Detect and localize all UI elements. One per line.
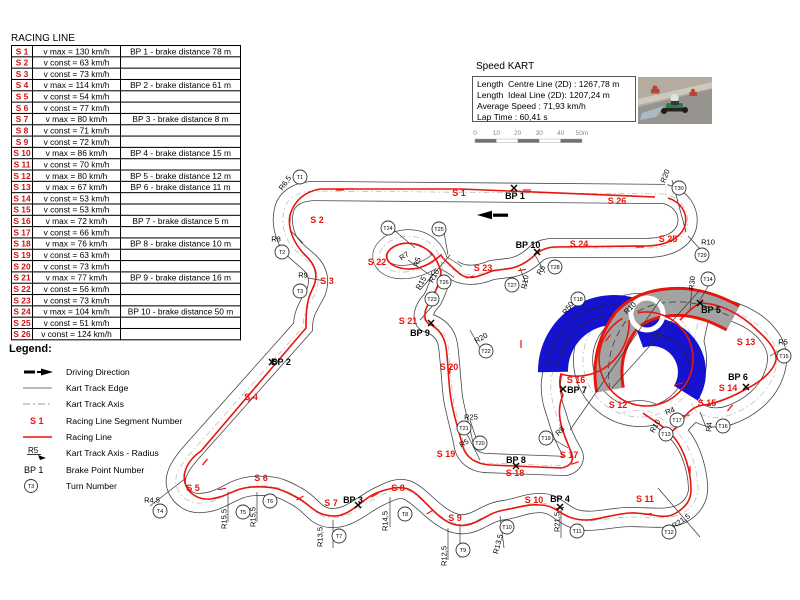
svg-text:10: 10 bbox=[493, 130, 501, 137]
svg-text:20: 20 bbox=[514, 130, 522, 137]
svg-text:S 25: S 25 bbox=[659, 234, 678, 244]
svg-text:T4: T4 bbox=[157, 509, 163, 515]
svg-text:T18: T18 bbox=[573, 297, 582, 303]
svg-text:S 23: S 23 bbox=[474, 263, 493, 273]
svg-text:BP 5: BP 5 bbox=[701, 305, 721, 315]
svg-text:T11: T11 bbox=[572, 529, 581, 535]
svg-text:T19: T19 bbox=[541, 436, 550, 442]
svg-text:BP 3: BP 3 bbox=[343, 495, 363, 505]
svg-text:T3: T3 bbox=[28, 484, 34, 490]
svg-text:Kart Track Edge: Kart Track Edge bbox=[66, 383, 128, 393]
svg-text:S 16: S 16 bbox=[567, 375, 586, 385]
svg-text:T20: T20 bbox=[475, 441, 484, 447]
svg-text:T17: T17 bbox=[672, 418, 681, 424]
svg-text:S 4: S 4 bbox=[244, 392, 258, 402]
svg-text:Turn Number: Turn Number bbox=[66, 481, 117, 491]
svg-text:BP 6: BP 6 bbox=[728, 372, 748, 382]
svg-text:R30: R30 bbox=[687, 276, 697, 290]
svg-text:S 11: S 11 bbox=[636, 494, 654, 504]
svg-text:S 1: S 1 bbox=[452, 188, 466, 198]
svg-text:R8: R8 bbox=[271, 235, 281, 244]
svg-text:T25: T25 bbox=[434, 227, 443, 233]
svg-text:T28: T28 bbox=[550, 265, 559, 271]
svg-text:BP 4: BP 4 bbox=[550, 494, 570, 504]
svg-text:BP 10: BP 10 bbox=[516, 240, 541, 250]
svg-text:Kart Track Axis: Kart Track Axis bbox=[66, 399, 125, 409]
svg-text:T2: T2 bbox=[279, 250, 285, 256]
svg-text:T27: T27 bbox=[507, 283, 516, 289]
svg-text:T10: T10 bbox=[502, 525, 511, 531]
svg-text:T13: T13 bbox=[661, 432, 670, 438]
svg-text:R4: R4 bbox=[704, 422, 714, 432]
svg-text:T21: T21 bbox=[459, 426, 468, 432]
svg-text:T1: T1 bbox=[297, 175, 303, 181]
svg-text:S 22: S 22 bbox=[368, 257, 387, 267]
svg-text:S 1: S 1 bbox=[30, 416, 44, 426]
svg-text:T22: T22 bbox=[481, 349, 490, 355]
svg-text:T8: T8 bbox=[402, 512, 408, 518]
svg-text:R10: R10 bbox=[701, 238, 715, 247]
svg-text:T5: T5 bbox=[240, 510, 246, 516]
svg-text:BP 8: BP 8 bbox=[506, 455, 526, 465]
svg-text:T6: T6 bbox=[267, 499, 273, 505]
svg-text:R5: R5 bbox=[28, 446, 39, 455]
svg-text:Driving Direction: Driving Direction bbox=[66, 367, 130, 377]
svg-text:Brake Point Number: Brake Point Number bbox=[66, 465, 144, 475]
svg-text:S 12: S 12 bbox=[609, 400, 628, 410]
svg-text:R13,5: R13,5 bbox=[316, 527, 325, 547]
svg-text:S 20: S 20 bbox=[440, 362, 459, 372]
svg-text:S 21: S 21 bbox=[399, 316, 418, 326]
svg-text:R9: R9 bbox=[298, 271, 308, 280]
svg-text:T30: T30 bbox=[674, 186, 683, 192]
svg-text:T24: T24 bbox=[383, 226, 392, 232]
svg-text:BP 1: BP 1 bbox=[505, 191, 525, 201]
svg-text:S 14: S 14 bbox=[719, 383, 738, 393]
svg-text:50m: 50m bbox=[576, 130, 589, 137]
svg-text:S 8: S 8 bbox=[391, 483, 405, 493]
svg-text:BP 1: BP 1 bbox=[24, 465, 43, 475]
svg-text:40: 40 bbox=[557, 130, 565, 137]
svg-text:T7: T7 bbox=[336, 534, 342, 540]
svg-text:R12,5: R12,5 bbox=[440, 546, 449, 566]
svg-text:S 24: S 24 bbox=[570, 239, 589, 249]
svg-text:R13,5: R13,5 bbox=[491, 533, 505, 555]
svg-text:R20: R20 bbox=[473, 331, 489, 346]
svg-text:R21,5: R21,5 bbox=[553, 512, 562, 532]
svg-text:S 6: S 6 bbox=[254, 473, 268, 483]
svg-text:R5: R5 bbox=[778, 338, 788, 347]
svg-text:BP 9: BP 9 bbox=[410, 328, 430, 338]
svg-text:S 17: S 17 bbox=[560, 450, 579, 460]
svg-text:S 26: S 26 bbox=[608, 196, 627, 206]
svg-text:S 19: S 19 bbox=[437, 449, 456, 459]
svg-text:S 15: S 15 bbox=[698, 398, 717, 408]
svg-text:T29: T29 bbox=[697, 253, 706, 259]
svg-text:R15,5: R15,5 bbox=[220, 509, 229, 529]
svg-text:T23: T23 bbox=[427, 297, 436, 303]
svg-text:T9: T9 bbox=[460, 548, 466, 554]
svg-text:S 18: S 18 bbox=[506, 468, 525, 478]
svg-text:R14,5: R14,5 bbox=[381, 511, 390, 531]
svg-text:S 10: S 10 bbox=[525, 495, 544, 505]
svg-text:30: 30 bbox=[536, 130, 544, 137]
svg-text:R20: R20 bbox=[658, 168, 671, 184]
svg-text:S 3: S 3 bbox=[320, 276, 334, 286]
svg-text:T12: T12 bbox=[664, 530, 673, 536]
svg-text:Racing Line: Racing Line bbox=[66, 432, 112, 442]
svg-text:BP 7: BP 7 bbox=[567, 385, 587, 395]
svg-text:T3: T3 bbox=[297, 289, 303, 295]
svg-text:Racing Line Segment Number: Racing Line Segment Number bbox=[66, 416, 182, 426]
svg-text:S 2: S 2 bbox=[310, 215, 324, 225]
svg-text:T14: T14 bbox=[703, 277, 712, 283]
svg-text:Kart Track Axis - Radius: Kart Track Axis - Radius bbox=[66, 448, 159, 458]
svg-text:T15: T15 bbox=[779, 354, 788, 360]
svg-text:S 7: S 7 bbox=[324, 498, 338, 508]
svg-text:0: 0 bbox=[473, 130, 477, 137]
svg-text:R25: R25 bbox=[464, 413, 478, 422]
svg-text:BP 2: BP 2 bbox=[271, 357, 291, 367]
svg-text:S 13: S 13 bbox=[737, 337, 756, 347]
svg-text:R10: R10 bbox=[519, 274, 530, 289]
svg-text:T16: T16 bbox=[718, 424, 727, 430]
svg-text:T26: T26 bbox=[439, 280, 448, 286]
svg-text:S 9: S 9 bbox=[448, 513, 462, 523]
